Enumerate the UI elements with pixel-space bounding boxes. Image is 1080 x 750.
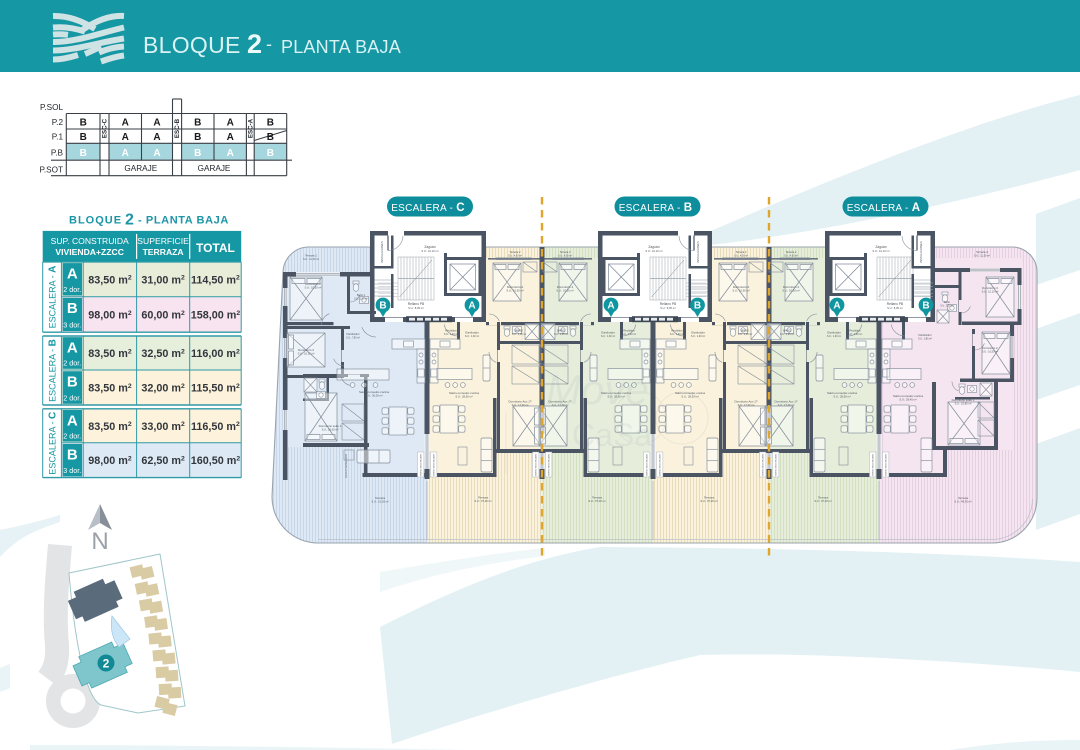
svg-text:S.U.: 1,40 m²: S.U.: 1,40 m²: [670, 333, 684, 336]
svg-text:83,50 m2: 83,50 m2: [88, 421, 132, 433]
svg-text:- PLANTA BAJA: - PLANTA BAJA: [138, 215, 229, 227]
svg-text:B: B: [67, 300, 78, 317]
svg-text:CaSa: CaSa: [572, 417, 652, 453]
svg-text:ESC-A: ESC-A: [248, 118, 255, 138]
svg-text:SUPERFICIE: SUPERFICIE: [137, 236, 189, 246]
svg-text:A: A: [153, 148, 160, 159]
svg-text:S.U.: 8,05 m²: S.U.: 8,05 m²: [887, 306, 903, 310]
svg-text:S.U.: 10,10 m²: S.U.: 10,10 m²: [645, 249, 662, 253]
svg-text:Dormitorio 2: Dormitorio 2: [982, 346, 998, 350]
svg-text:3 dor.: 3 dor.: [63, 321, 81, 330]
svg-text:A: A: [122, 132, 129, 143]
svg-text:A: A: [607, 301, 614, 312]
svg-text:2: 2: [125, 212, 134, 229]
svg-text:2: 2: [103, 657, 110, 671]
svg-text:2 dor.: 2 dor.: [63, 431, 81, 440]
svg-text:S.U.: 28,50 m²: S.U.: 28,50 m²: [455, 395, 472, 399]
svg-text:P.SOL: P.SOL: [40, 103, 64, 112]
svg-text:B: B: [194, 118, 201, 129]
svg-text:S.U.: 10,10 m²: S.U.: 10,10 m²: [872, 249, 889, 253]
svg-text:S.U.: 10,50 m²: S.U.: 10,50 m²: [732, 289, 749, 293]
svg-text:GARAJE: GARAJE: [124, 164, 157, 173]
svg-text:BLOQUE: BLOQUE: [69, 215, 122, 227]
svg-text:S.U.: 10,10 m²: S.U.: 10,10 m²: [421, 249, 438, 253]
svg-text:Distribuidor: Distribuidor: [827, 331, 841, 335]
svg-text:S.U.: 11,30 m²: S.U.: 11,30 m²: [303, 258, 319, 261]
svg-text:BLOQUE: BLOQUE: [143, 32, 241, 58]
svg-text:S.U.: 37,00 m²: S.U.: 37,00 m²: [474, 499, 491, 503]
svg-text:S.U.: 37,00 m²: S.U.: 37,00 m²: [814, 499, 831, 503]
svg-text:Dormitorio 2: Dormitorio 2: [783, 285, 800, 289]
svg-text:Salón-comedor-cocina: Salón-comedor-cocina: [449, 391, 479, 395]
svg-text:98,00 m2: 98,00 m2: [88, 455, 132, 467]
svg-text:B: B: [67, 446, 78, 463]
svg-text:S.U.: 1,90 m²: S.U.: 1,90 m²: [601, 335, 615, 338]
svg-text:S.U.: 4,00 m²: S.U.: 4,00 m²: [558, 254, 572, 257]
svg-text:S.U.: 3,20 m²: S.U.: 3,20 m²: [940, 305, 954, 308]
svg-text:116,50 m2: 116,50 m2: [191, 421, 240, 433]
svg-text:Rellano PB: Rellano PB: [660, 302, 677, 306]
svg-text:Terraza: Terraza: [375, 496, 385, 500]
svg-text:S.U.: 4,00 m²: S.U.: 4,00 m²: [784, 254, 798, 257]
svg-text:B: B: [267, 118, 274, 129]
svg-text:62,50 m2: 62,50 m2: [141, 455, 185, 467]
svg-text:S.U.: 1,40 m²: S.U.: 1,40 m²: [622, 333, 636, 336]
svg-text:S.U.: 4,05 m²: S.U.: 4,05 m²: [554, 333, 568, 336]
svg-text:A: A: [122, 118, 129, 129]
svg-text:B: B: [267, 148, 274, 159]
svg-text:31,00 m2: 31,00 m2: [141, 274, 185, 286]
svg-text:ESCALERA - C: ESCALERA - C: [47, 412, 58, 475]
svg-text:ESC-B: ESC-B: [174, 118, 181, 138]
svg-text:-: -: [266, 34, 272, 54]
svg-text:Dormitorio suite 1: Dormitorio suite 1: [319, 424, 342, 428]
svg-text:160,50 m2: 160,50 m2: [191, 455, 241, 467]
svg-text:A: A: [153, 132, 160, 143]
svg-text:S.U.: 28,50 m²: S.U.: 28,50 m²: [833, 395, 850, 399]
svg-text:VIDRIO SECURIZADO: VIDRIO SECURIZADO: [762, 453, 765, 476]
svg-text:32,50 m2: 32,50 m2: [141, 348, 185, 360]
svg-text:Dormitorio Aux 1?: Dormitorio Aux 1?: [775, 400, 798, 404]
svg-text:S.U.: 1,40 m²: S.U.: 1,40 m²: [444, 333, 458, 336]
svg-text:Salón-comedor-cocina: Salón-comedor-cocina: [827, 391, 857, 395]
svg-text:A: A: [227, 118, 234, 129]
svg-text:S.U.: 7,80 m²: S.U.: 7,80 m²: [346, 337, 360, 340]
svg-text:INSTALACIONES: INSTALACIONES: [919, 241, 923, 263]
svg-text:S.U.: 10,50 m²: S.U.: 10,50 m²: [556, 289, 573, 293]
svg-text:Baño 1: Baño 1: [357, 293, 366, 297]
svg-text:2: 2: [247, 29, 262, 59]
svg-text:TOTAL: TOTAL: [196, 241, 235, 255]
svg-text:A: A: [122, 148, 129, 159]
svg-text:Dormitorio 2: Dormitorio 2: [733, 285, 750, 289]
svg-text:P.B: P.B: [51, 149, 64, 158]
svg-text:S.U.: 17,00 m²: S.U.: 17,00 m²: [778, 403, 795, 407]
svg-text:3 dor.: 3 dor.: [63, 466, 81, 475]
svg-text:S.U.: 15,80 m²: S.U.: 15,80 m²: [955, 402, 972, 406]
svg-text:ESC-C: ESC-C: [102, 118, 109, 138]
svg-text:158,00 m2: 158,00 m2: [191, 309, 241, 321]
svg-text:S.U.: 17,00 m²: S.U.: 17,00 m²: [738, 403, 755, 407]
svg-text:83,50 m2: 83,50 m2: [88, 274, 132, 286]
svg-text:S.U.: 1,40 m²: S.U.: 1,40 m²: [848, 333, 862, 336]
svg-text:2 dor.: 2 dor.: [63, 285, 81, 294]
svg-text:S.U.: 10,50 m²: S.U.: 10,50 m²: [982, 351, 998, 354]
svg-text:S.U.: 10,50 m²: S.U.: 10,50 m²: [506, 289, 523, 293]
svg-text:Baño: Baño: [944, 301, 950, 304]
svg-text:INSTALACIONES: INSTALACIONES: [696, 241, 700, 263]
svg-text:Dormitorio 3: Dormitorio 3: [298, 348, 314, 352]
svg-text:Terraza 3: Terraza 3: [976, 250, 988, 254]
svg-text:Dormitorio Aux 1?: Dormitorio Aux 1?: [735, 400, 758, 404]
svg-text:A: A: [67, 340, 78, 357]
svg-text:Dormitorio 3: Dormitorio 3: [982, 286, 998, 290]
svg-text:A: A: [67, 265, 78, 282]
svg-text:P.1: P.1: [52, 133, 64, 142]
svg-text:83,50 m2: 83,50 m2: [88, 383, 132, 395]
svg-text:TERRAZA: TERRAZA: [143, 247, 184, 257]
svg-text:S.U.: 31,20 m²: S.U.: 31,20 m²: [371, 500, 388, 504]
svg-text:S.U.: 17,00 m²: S.U.: 17,00 m²: [512, 403, 529, 407]
svg-text:CERCO SEPARADOR: CERCO SEPARADOR: [345, 454, 348, 478]
svg-text:A: A: [833, 301, 840, 312]
svg-text:B: B: [379, 301, 386, 312]
svg-text:S.U.: 3,20 m²: S.U.: 3,20 m²: [354, 298, 368, 301]
svg-text:S.U.: 1,90 m²: S.U.: 1,90 m²: [827, 335, 841, 338]
svg-text:B: B: [67, 374, 78, 391]
svg-text:116,00 m2: 116,00 m2: [191, 348, 240, 360]
svg-text:S.U.: 49,30 m²: S.U.: 49,30 m²: [954, 500, 971, 504]
svg-text:S.U.: 29,45 m²: S.U.: 29,45 m²: [899, 398, 916, 402]
svg-text:INSTALACIONES: INSTALACIONES: [380, 241, 384, 263]
svg-text:Rellano PB: Rellano PB: [887, 302, 904, 306]
svg-text:ESCALERA - C: ESCALERA - C: [391, 202, 465, 214]
svg-text:B: B: [194, 132, 201, 143]
svg-text:115,50 m2: 115,50 m2: [191, 383, 240, 395]
svg-text:Recibidor: Recibidor: [671, 329, 682, 333]
svg-text:2 dor.: 2 dor.: [63, 359, 81, 368]
svg-text:Dormitorio 2: Dormitorio 2: [305, 282, 321, 286]
svg-text:S.U.: 10,50 m²: S.U.: 10,50 m²: [782, 289, 799, 293]
svg-text:Zaguán: Zaguán: [424, 245, 435, 249]
svg-text:VIDRIO SECURIZADO: VIDRIO SECURIZADO: [535, 453, 538, 476]
svg-text:Distribuidor: Distribuidor: [465, 331, 479, 335]
svg-text:S.U.: 8,05 m²: S.U.: 8,05 m²: [660, 306, 676, 310]
svg-text:Terraza: Terraza: [478, 496, 488, 500]
svg-text:VIDRIO SECURIZADO: VIDRIO SECURIZADO: [659, 453, 662, 476]
svg-text:Rellano PB: Rellano PB: [408, 302, 425, 306]
svg-text:S.U.: 37,00 m²: S.U.: 37,00 m²: [588, 499, 605, 503]
svg-text:Zaguán: Zaguán: [875, 245, 886, 249]
svg-text:S.U.: 30,00 m²: S.U.: 30,00 m²: [365, 394, 382, 398]
svg-text:ESCALERA - A: ESCALERA - A: [847, 202, 921, 214]
svg-text:VIDRIO SECURIZADO: VIDRIO SECURIZADO: [548, 453, 551, 476]
svg-text:Dormitorio suite 1: Dormitorio suite 1: [952, 398, 975, 402]
svg-text:S.U.: 3,85 m²: S.U.: 3,85 m²: [918, 338, 932, 341]
svg-text:Salón-comedor-cocina: Salón-comedor-cocina: [893, 394, 923, 398]
svg-text:A: A: [468, 301, 475, 312]
svg-text:ESCALERA - A: ESCALERA - A: [47, 266, 58, 329]
svg-text:32,00 m2: 32,00 m2: [141, 383, 185, 395]
svg-text:VIDRIO SECURIZADO: VIDRIO SECURIZADO: [646, 453, 649, 476]
svg-text:A: A: [153, 118, 160, 129]
svg-text:Terraza 2: Terraza 2: [786, 250, 797, 254]
svg-text:83,50 m2: 83,50 m2: [88, 348, 132, 360]
svg-text:PLANTA BAJA: PLANTA BAJA: [281, 37, 401, 57]
svg-text:Salón-comedor-cocina: Salón-comedor-cocina: [359, 390, 389, 394]
svg-text:S.U.: 4,00 m²: S.U.: 4,00 m²: [508, 254, 522, 257]
svg-text:SUP. CONSTRUIDA: SUP. CONSTRUIDA: [51, 236, 129, 246]
svg-text:B: B: [80, 118, 87, 129]
svg-text:S.U.: 4,00 m²: S.U.: 4,00 m²: [734, 254, 748, 257]
svg-text:VIVIENDA+ZZCC: VIVIENDA+ZZCC: [55, 247, 124, 257]
svg-text:S.U.: 4,05 m²: S.U.: 4,05 m²: [512, 333, 526, 336]
svg-text:Distribuidor: Distribuidor: [918, 333, 931, 337]
svg-text:P.2: P.2: [52, 118, 64, 127]
svg-text:Terraza 2: Terraza 2: [560, 250, 571, 254]
svg-text:B: B: [80, 148, 87, 159]
svg-text:Terraza 2: Terraza 2: [736, 250, 747, 254]
svg-text:114,50 m2: 114,50 m2: [191, 274, 240, 286]
svg-text:S.U.: 4,05 m²: S.U.: 4,05 m²: [738, 333, 752, 336]
svg-text:B: B: [80, 132, 87, 143]
svg-text:60,00 m2: 60,00 m2: [141, 309, 185, 321]
svg-text:B: B: [267, 132, 274, 143]
svg-text:Recibidor: Recibidor: [849, 329, 860, 333]
svg-text:Terraza: Terraza: [958, 496, 968, 500]
svg-text:S.U.: 1,90 m²: S.U.: 1,90 m²: [465, 335, 479, 338]
svg-text:VIDRIO SECURIZADO: VIDRIO SECURIZADO: [872, 453, 875, 476]
svg-text:ESCALERA - B: ESCALERA - B: [619, 202, 693, 214]
svg-text:A: A: [67, 412, 78, 429]
svg-text:Terraza 1: Terraza 1: [305, 254, 317, 258]
svg-text:Terraza: Terraza: [818, 496, 828, 500]
svg-text:S.U.: 4,05 m²: S.U.: 4,05 m²: [780, 333, 794, 336]
svg-text:S.U.: 10,50 m²: S.U.: 10,50 m²: [305, 286, 322, 290]
svg-text:Terraza 2: Terraza 2: [510, 250, 521, 254]
svg-text:S.U.: 10,10 m²: S.U.: 10,10 m²: [298, 352, 315, 356]
svg-text:S.U.: 37,00 m²: S.U.: 37,00 m²: [700, 499, 717, 503]
svg-text:Distribuidor: Distribuidor: [601, 331, 615, 335]
svg-text:2 dor.: 2 dor.: [63, 394, 81, 403]
svg-text:VIDRIO SECURIZADO: VIDRIO SECURIZADO: [775, 453, 778, 476]
svg-text:ESCALERA - B: ESCALERA - B: [47, 339, 58, 402]
svg-text:Distribuidor: Distribuidor: [346, 332, 359, 336]
svg-text:Recibidor: Recibidor: [445, 329, 456, 333]
svg-text:VIDRIO SECURIZADO: VIDRIO SECURIZADO: [433, 453, 436, 476]
svg-text:Terraza: Terraza: [704, 496, 714, 500]
svg-text:VIDRIO SECURIZADO: VIDRIO SECURIZADO: [420, 453, 423, 476]
svg-text:33,00 m2: 33,00 m2: [141, 421, 185, 433]
svg-text:B: B: [922, 301, 929, 312]
svg-text:Dormitorio Aux 1?: Dormitorio Aux 1?: [509, 400, 532, 404]
svg-text:GARAJE: GARAJE: [198, 164, 231, 173]
svg-text:VIDRIO SECURIZADO: VIDRIO SECURIZADO: [885, 453, 888, 476]
svg-text:S.U.: 1,90 m²: S.U.: 1,90 m²: [691, 335, 705, 338]
svg-text:B: B: [694, 301, 701, 312]
svg-text:S.U.: 8,05 m²: S.U.: 8,05 m²: [408, 306, 424, 310]
svg-text:A: A: [227, 148, 234, 159]
svg-text:Recibidor: Recibidor: [623, 329, 634, 333]
svg-text:Zaguán: Zaguán: [648, 245, 659, 249]
svg-text:B: B: [194, 148, 201, 159]
svg-text:Dormitorio 2: Dormitorio 2: [507, 285, 524, 289]
svg-text:S.U.: 12,10 m²: S.U.: 12,10 m²: [982, 290, 999, 294]
svg-text:98,00 m2: 98,00 m2: [88, 309, 132, 321]
svg-text:Dormitorio 2: Dormitorio 2: [557, 285, 574, 289]
svg-text:S.U.: 15,00 m²: S.U.: 15,00 m²: [322, 428, 339, 432]
svg-text:Distribuidor: Distribuidor: [691, 331, 705, 335]
svg-text:P.SOT: P.SOT: [39, 166, 63, 175]
svg-text:Move: Move: [546, 366, 649, 413]
svg-text:Terraza: Terraza: [592, 496, 602, 500]
svg-text:S.U.: 11,30 m²: S.U.: 11,30 m²: [974, 255, 990, 258]
svg-text:N: N: [91, 528, 108, 555]
svg-text:A: A: [227, 132, 234, 143]
